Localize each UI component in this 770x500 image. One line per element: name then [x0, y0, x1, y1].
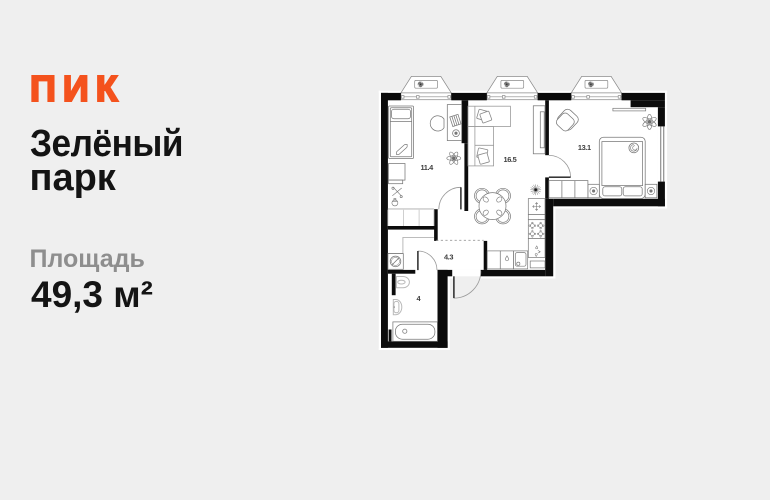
svg-text:16.5: 16.5	[504, 155, 517, 164]
svg-text:4.3: 4.3	[444, 253, 453, 262]
svg-text:11.4: 11.4	[421, 163, 435, 172]
svg-text:13.1: 13.1	[578, 143, 591, 152]
